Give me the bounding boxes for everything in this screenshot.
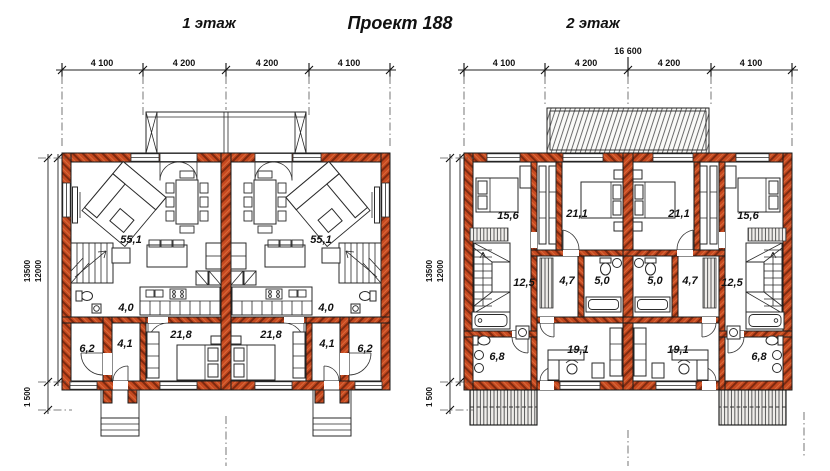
balcony	[470, 390, 537, 425]
floor2-plan: 15,6 21,1 12,5 4,7 5,0 6,8 19,1 21,1 15,…	[464, 108, 792, 425]
dim-f2-0: 4 100	[493, 58, 516, 68]
dim-f2-porch: 1 500	[425, 386, 434, 407]
study-door	[540, 317, 554, 337]
dim-f1-1: 4 200	[173, 58, 196, 68]
partition	[531, 250, 633, 256]
floor1-title: 1 этаж	[182, 15, 236, 32]
room-label-hall-right: 4,1	[318, 338, 334, 350]
floor2-roof-terrace	[547, 108, 709, 153]
floor2-title: 2 этаж	[565, 15, 620, 32]
bed-small-room	[476, 166, 531, 212]
sink-icon	[475, 364, 484, 373]
wall-left	[464, 153, 473, 390]
sink-icon	[613, 259, 622, 268]
landing-closets	[539, 166, 556, 244]
dim-f2-1: 4 200	[575, 58, 598, 68]
room-label-bedroom-large-right: 21,1	[667, 208, 689, 220]
entrance-door	[113, 366, 128, 390]
window-bedroom-large	[563, 154, 603, 161]
washer-icon	[516, 326, 529, 339]
floor2-unit-right	[623, 153, 792, 425]
bed-large-room	[581, 170, 623, 231]
dim-f2-height-total: 13500	[425, 259, 434, 282]
wardrobe	[147, 332, 159, 378]
porch-wall	[103, 390, 112, 403]
dim-f2-height-main: 12000	[436, 259, 445, 282]
window-left	[63, 183, 70, 217]
room-label-hall-right: 12,5	[721, 277, 743, 289]
titles: 1 этаж Проект 188 2 этаж	[182, 13, 620, 33]
floor1-terrace	[146, 112, 306, 153]
window-bedroom	[160, 382, 197, 389]
window-bedroom-small	[487, 154, 520, 161]
bathroom-door	[81, 353, 112, 375]
partition	[140, 323, 146, 381]
dim-f1-height-total: 13500	[23, 259, 32, 282]
toilet-icon	[601, 263, 611, 275]
coffee-table	[110, 209, 134, 233]
tv-unit	[73, 187, 81, 223]
pillow	[208, 364, 218, 377]
room-label-bedroom-small-right: 15,6	[737, 210, 759, 222]
wardrobe-hatch	[540, 258, 553, 308]
dim-f1-porch: 1 500	[23, 386, 32, 407]
room-label-living-right: 55,1	[310, 234, 331, 246]
room-label-kitchen-right: 4,0	[317, 302, 334, 314]
pillow	[478, 181, 487, 194]
pillow	[613, 185, 621, 199]
room-label-bath-lower-left: 6,8	[489, 351, 505, 363]
dining-set	[166, 171, 208, 233]
toilet-icon	[478, 336, 490, 345]
pillow	[613, 201, 621, 215]
nightstand	[211, 336, 221, 344]
hall-door-opening	[531, 232, 537, 248]
room-label-bathroom-right: 5,0	[647, 275, 663, 287]
side-table	[112, 248, 130, 263]
room-label-living-left: 55,1	[120, 234, 141, 246]
dim-f1-3: 4 100	[338, 58, 361, 68]
room-label-study-left: 19,1	[567, 344, 588, 356]
stairs	[474, 243, 510, 313]
floor1-unit-right	[221, 153, 390, 436]
project-title: Проект 188	[347, 13, 452, 33]
cabinet	[592, 363, 604, 378]
room-label-bedroom-right: 21,8	[259, 329, 282, 341]
floor2-unit	[464, 153, 633, 425]
window-bathroom	[70, 382, 97, 389]
bed-double	[177, 336, 221, 380]
window-study	[560, 382, 600, 389]
dim-f2-2: 4 200	[658, 58, 681, 68]
pillow	[208, 348, 218, 361]
room-label-bath-left: 6,2	[79, 343, 94, 355]
room-label-wardrobe-left: 4,7	[558, 275, 575, 287]
dim-f1-height-main: 12000	[34, 259, 43, 282]
room-label-study-right: 19,1	[667, 344, 688, 356]
bathtub-hall	[472, 312, 510, 329]
sink-icon	[475, 351, 484, 360]
room-label-bedroom-left: 21,8	[169, 329, 192, 341]
dim-f1-0: 4 100	[91, 58, 114, 68]
toilet-icon	[82, 292, 93, 301]
dim-f2-total: 16 600	[614, 46, 642, 56]
floorplan-drawing: 55,1 4,0 21,8 6,2 4,1 55,1 4,0 21,8 6,2 …	[0, 0, 830, 471]
terrace-door	[160, 154, 197, 181]
porch-wall	[128, 390, 137, 403]
room-label-bedroom-large-left: 21,1	[565, 208, 587, 220]
sofa	[610, 328, 622, 376]
room-label-kitchen-left: 4,0	[117, 302, 134, 314]
dresser	[520, 166, 531, 188]
room-label-bathroom-left: 5,0	[594, 275, 610, 287]
nightstand	[614, 222, 623, 231]
nightstand	[614, 170, 623, 179]
room-label-bath-right: 6,2	[357, 343, 372, 355]
room-label-hall-left: 4,1	[116, 338, 132, 350]
partition	[556, 162, 562, 250]
room-label-wardrobe-right: 4,7	[681, 275, 698, 287]
room-label-bath-lower-right: 6,8	[751, 351, 767, 363]
window-top	[131, 154, 159, 161]
floorplan-sheet: 55,1 4,0 21,8 6,2 4,1 55,1 4,0 21,8 6,2 …	[0, 0, 830, 471]
chair	[567, 364, 577, 374]
stairs	[71, 243, 113, 283]
partition	[578, 256, 584, 317]
floor1-plan: 55,1 4,0 21,8 6,2 4,1 55,1 4,0 21,8 6,2 …	[62, 112, 390, 436]
bedroom-large-door	[563, 230, 579, 256]
floor1-unit	[62, 153, 231, 436]
room-label-hall-left: 12,5	[513, 277, 535, 289]
room-label-bedroom-small-left: 15,6	[497, 210, 519, 222]
closet-hatch	[470, 228, 508, 241]
kitchen-counter	[140, 287, 220, 315]
dim-f1-2: 4 200	[256, 58, 279, 68]
pillow	[478, 196, 487, 209]
dim-f2-3: 4 100	[740, 58, 763, 68]
